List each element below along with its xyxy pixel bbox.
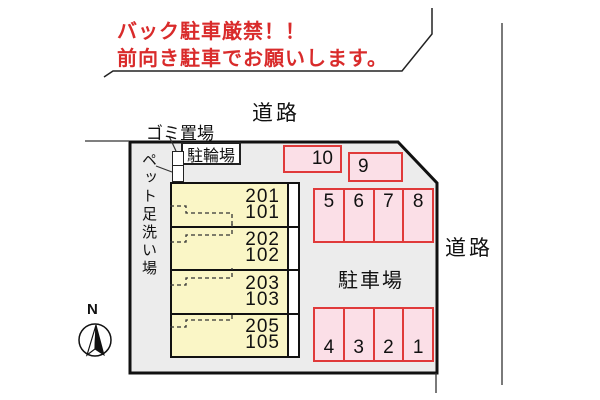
site-plan: 201 101 202 102 203 103 205 105 [0, 0, 600, 400]
parking-space-number: 10 [312, 148, 333, 170]
garbage-area-label: ゴミ置場 [146, 119, 214, 144]
parking-space-9: 9 [348, 152, 403, 182]
parking-space-3: 3 [343, 307, 375, 362]
porch-strip [287, 271, 298, 313]
parking-space-number: 1 [413, 337, 424, 359]
unit-203-103: 203 103 [172, 271, 287, 313]
north-label: N [87, 301, 98, 318]
pet-wash-label: ペット足洗い場 [138, 152, 158, 304]
parking-space-6: 6 [343, 188, 375, 243]
building-unit-row: 201 101 [172, 184, 298, 228]
parking-space-number: 9 [358, 156, 369, 178]
parking-space-number: 4 [324, 337, 335, 359]
parking-space-5: 5 [313, 188, 345, 243]
garbage-box [172, 151, 184, 182]
building-unit-row: 205 105 [172, 315, 298, 357]
building: 201 101 202 102 203 103 205 105 [170, 182, 300, 358]
unit-205-105: 205 105 [172, 315, 287, 357]
parking-space-number: 7 [383, 191, 394, 213]
parking-row-5-8: 5 6 7 8 [313, 188, 434, 243]
unit-number-lower: 101 [245, 205, 280, 221]
notice-line-2: 前向き駐車でお願いします。 [117, 42, 388, 71]
parking-space-4: 4 [313, 307, 345, 362]
porch-strip [287, 184, 298, 226]
pet-wash-leader-line [156, 166, 172, 172]
road-label-right: 道路 [445, 232, 493, 262]
bicycle-parking-box: 駐輪場 [181, 142, 241, 165]
bicycle-parking-label: 駐輪場 [187, 142, 235, 166]
porch-strip [287, 228, 298, 270]
parking-space-number: 8 [413, 191, 424, 213]
notice-line-1: バック駐車厳禁！！ [117, 15, 306, 44]
unit-201-101: 201 101 [172, 184, 287, 226]
parking-space-number: 5 [324, 191, 335, 213]
parking-space-10: 10 [283, 145, 342, 173]
building-unit-row: 202 102 [172, 228, 298, 272]
parking-space-2: 2 [373, 307, 405, 362]
parking-space-1: 1 [402, 307, 434, 362]
parking-space-number: 6 [353, 191, 364, 213]
pet-wash-cell [173, 166, 183, 180]
parking-space-number: 3 [353, 337, 364, 359]
garbage-box-upper-cell [173, 152, 183, 166]
parking-row-4-1: 4 3 2 1 [313, 307, 434, 362]
parking-lot-label: 駐車場 [338, 264, 404, 293]
parking-space-number: 2 [383, 337, 394, 359]
parking-space-7: 7 [373, 188, 405, 243]
unit-202-102: 202 102 [172, 228, 287, 270]
compass-north-icon [79, 324, 111, 356]
porch-strip [287, 315, 298, 357]
building-unit-row: 203 103 [172, 271, 298, 315]
unit-number-lower: 103 [245, 292, 280, 308]
unit-number-lower: 105 [245, 335, 280, 351]
unit-number-lower: 102 [245, 248, 280, 264]
road-label-top: 道路 [252, 97, 300, 127]
parking-space-8: 8 [402, 188, 434, 243]
